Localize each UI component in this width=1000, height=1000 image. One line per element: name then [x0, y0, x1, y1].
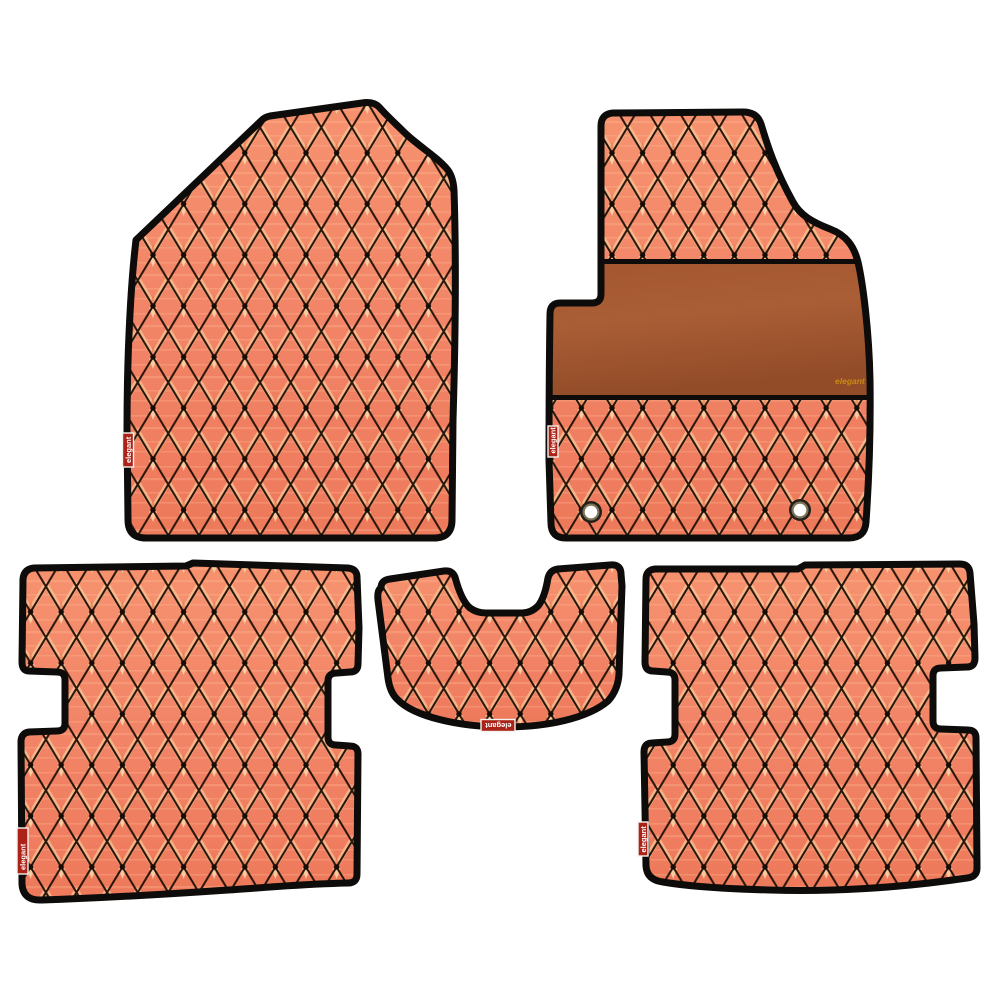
svg-text:elegant: elegant	[835, 376, 866, 386]
svg-text:elegant: elegant	[485, 721, 512, 730]
svg-text:elegant: elegant	[19, 843, 28, 870]
svg-text:elegant: elegant	[549, 427, 558, 454]
svg-text:elegant: elegant	[124, 436, 133, 463]
svg-text:elegant: elegant	[639, 826, 648, 853]
